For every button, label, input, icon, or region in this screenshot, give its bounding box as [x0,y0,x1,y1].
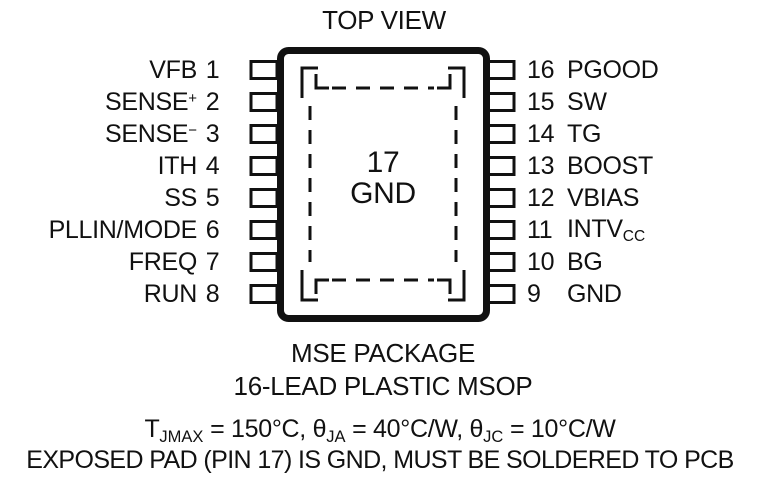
pin-row-3: SENSE− 3 [0,118,222,150]
pin-number-2: 2 [203,88,222,117]
pin-row-15: 15 SW [527,86,760,118]
pin-number-11: 11 [527,216,567,245]
pin-number-7: 7 [203,248,222,277]
package-type-caption: 16-LEAD PLASTIC MSOP [130,370,636,403]
pin-row-8: RUN 8 [0,278,222,310]
pin-name-2: SENSE+ [105,88,197,117]
pin-name-4: ITH [158,152,197,181]
package-captions: MSE PACKAGE 16-LEAD PLASTIC MSOP [130,337,636,403]
exposed-pad-note: EXPOSED PAD (PIN 17) IS GND, MUST BE SOL… [0,446,760,474]
pin-name-8: RUN [144,280,197,309]
pin-row-7: FREQ 7 [0,246,222,278]
right-pin-labels: 16 PGOOD 15 SW 14 TG 13 BOOST 12 VBIAS 1… [527,54,760,310]
pin-name-3: SENSE− [105,120,197,149]
pin-number-5: 5 [203,184,222,213]
pin-lead-6 [251,222,277,239]
pin-number-3: 3 [203,120,222,149]
pin-name-12: VBIAS [567,184,639,213]
pin-lead-12 [488,190,514,207]
pin-row-1: VFB 1 [0,54,222,86]
pin-name-7: FREQ [129,248,197,277]
pin-number-10: 10 [527,248,567,277]
pin-row-4: ITH 4 [0,150,222,182]
exposed-pad-label: GND [310,178,456,209]
pin-row-14: 14 TG [527,118,760,150]
pin-lead-2 [251,94,277,111]
pin-lead-1 [251,62,277,79]
pin-number-6: 6 [203,216,222,245]
pin-name-6: PLLIN/MODE [49,216,197,245]
pin-lead-7 [251,254,277,271]
pin-number-8: 8 [203,280,222,309]
pin-lead-14 [488,126,514,143]
exposed-pad-text: 17 GND [310,147,456,209]
pin-lead-10 [488,254,514,271]
pin-row-12: 12 VBIAS [527,182,760,214]
pin-row-6: PLLIN/MODE 6 [0,214,222,246]
pin-name-11: INTVCC [567,215,645,246]
pin-row-10: 10 BG [527,246,760,278]
pinout-diagram: TOP VIEW [0,0,760,486]
pin-row-2: SENSE+ 2 [0,86,222,118]
pin-name-14: TG [567,120,601,149]
package-name-caption: MSE PACKAGE [130,337,636,370]
pin-lead-4 [251,158,277,175]
pin-name-16: PGOOD [567,56,659,85]
pin-lead-9 [488,286,514,303]
pin-lead-8 [251,286,277,303]
pin-lead-5 [251,190,277,207]
pin-number-1: 1 [203,56,222,85]
pin-name-1: VFB [149,56,197,85]
pin-lead-3 [251,126,277,143]
pin-name-13: BOOST [567,152,653,181]
pin-name-10: BG [567,248,603,277]
pin-number-4: 4 [203,152,222,181]
pin-lead-11 [488,222,514,239]
exposed-pad-number: 17 [310,147,456,178]
pin-lead-15 [488,94,514,111]
pin-row-13: 13 BOOST [527,150,760,182]
pin-row-5: SS 5 [0,182,222,214]
pin-number-15: 15 [527,88,567,117]
pin-name-15: SW [567,88,607,117]
pin-number-13: 13 [527,152,567,181]
pin-lead-13 [488,158,514,175]
pin-number-12: 12 [527,184,567,213]
pin-row-11: 11 INTVCC [527,214,760,246]
pin-lead-16 [488,62,514,79]
pin-row-9: 9 GND [527,278,760,310]
pin-number-9: 9 [527,280,567,309]
pin-number-14: 14 [527,120,567,149]
pin-row-16: 16 PGOOD [527,54,760,86]
pin-name-5: SS [164,184,197,213]
pin-name-9: GND [567,280,622,309]
left-pin-labels: VFB 1 SENSE+ 2 SENSE− 3 ITH 4 SS 5 PLLIN… [0,54,222,310]
pin-number-16: 16 [527,56,567,85]
